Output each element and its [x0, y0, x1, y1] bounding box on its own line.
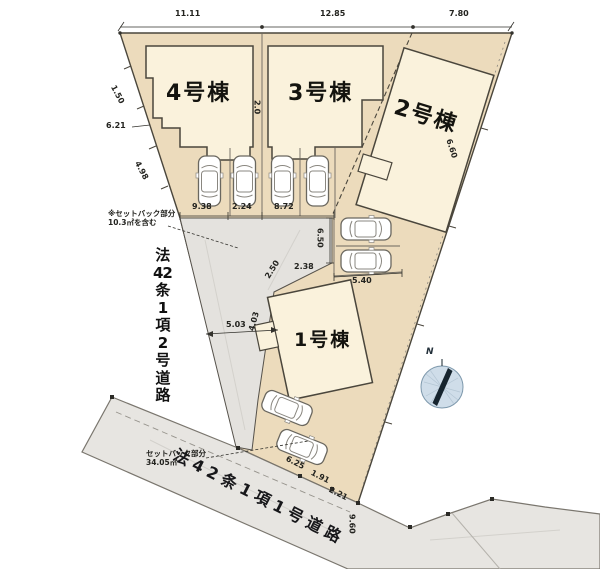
dim-top-right: 7.80 [449, 10, 469, 18]
dim-parking-2: 2.24 [232, 203, 252, 211]
setback-annotation-bottom-line1: セットバック部分 [146, 449, 206, 458]
dim-650: 6.50 [315, 228, 323, 248]
road-left-char: 路 [155, 387, 169, 404]
car-top-view-icon [341, 248, 391, 275]
building-1-label: 1号棟 [294, 331, 351, 351]
dim-parking-3: 8.72 [274, 203, 294, 211]
dim-20: 2.0 [252, 100, 260, 114]
site-plan-figure: 11.11 12.85 7.80 9.38 2.24 8.72 6.50 2.3… [0, 0, 600, 569]
setback-annotation-mid-line1: ※セットバック部分 [108, 209, 175, 218]
dim-parking-1: 9.38 [192, 203, 212, 211]
car-top-view-icon [341, 216, 391, 243]
dim-road-width: 5.03 [226, 321, 246, 329]
road-label-left: 法 42 条 1 項 2 号 道 路 [153, 247, 172, 404]
north-compass-icon [421, 359, 463, 408]
dim-top-middle: 12.85 [320, 10, 345, 18]
building-3-label: 3号棟 [288, 82, 353, 105]
road-left-char: 道 [155, 370, 169, 387]
setback-annotation-bottom: セットバック部分 34.05㎡ [146, 449, 206, 467]
road-left-char: 号 [155, 352, 169, 369]
dim-238: 2.38 [294, 263, 314, 271]
road-left-char: 42 [153, 265, 172, 282]
building-4-label: 4号棟 [166, 82, 231, 105]
compass-north-label: N [426, 348, 434, 357]
road-left-char: 項 [155, 317, 169, 334]
dim-top-left: 11.11 [175, 10, 200, 18]
road-left-char: 1 [158, 300, 167, 317]
car-top-view-icon [196, 156, 223, 206]
road-left-char: 条 [155, 282, 169, 299]
setback-annotation-mid-line2: 10.3㎡を含む [108, 218, 175, 227]
car-top-view-icon [269, 156, 296, 206]
dim-621: 6.21 [106, 122, 126, 130]
car-top-view-icon [304, 156, 331, 206]
setback-annotation-mid: ※セットバック部分 10.3㎡を含む [108, 209, 175, 227]
road-left-char: 法 [155, 247, 169, 264]
dim-540: 5.40 [352, 277, 372, 285]
road-left-char: 2 [158, 335, 167, 352]
setback-annotation-bottom-line2: 34.05㎡ [146, 458, 206, 467]
car-top-view-icon [231, 156, 258, 206]
